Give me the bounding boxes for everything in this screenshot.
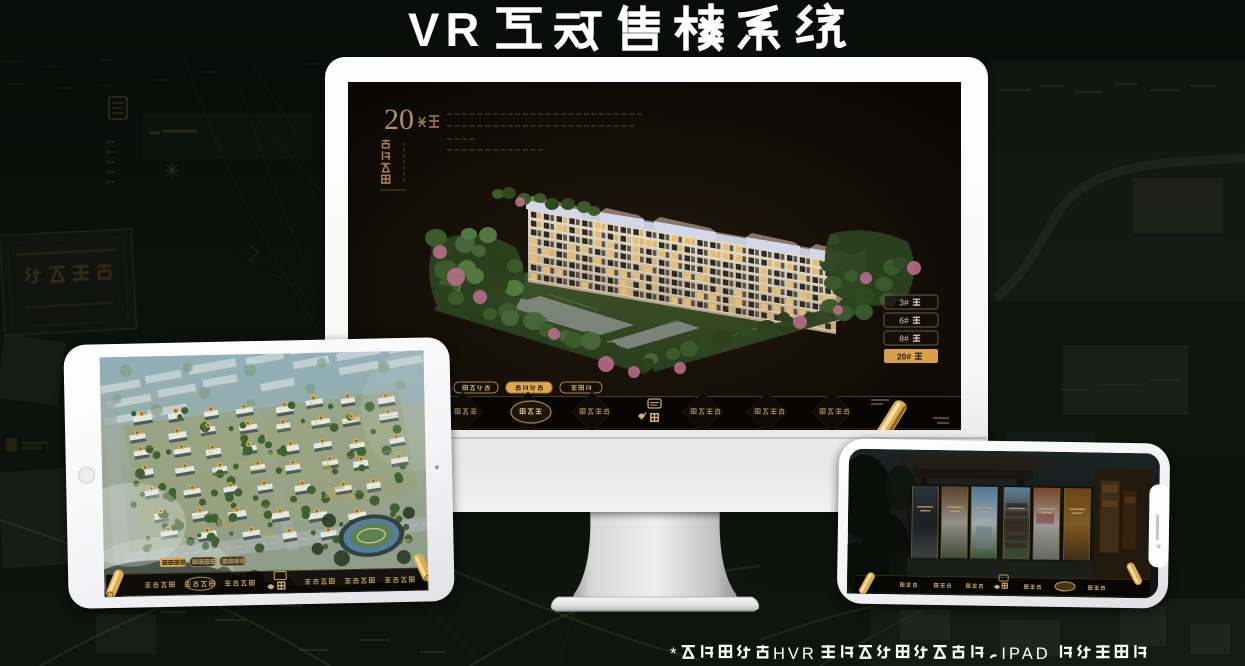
svg-text:8#: 8# <box>899 334 909 344</box>
svg-text:*: * <box>670 644 677 663</box>
svg-text:20: 20 <box>384 103 414 136</box>
svg-text:6#: 6# <box>899 316 909 326</box>
svg-text:VR: VR <box>408 3 485 56</box>
svg-text:IPAD: IPAD <box>1001 645 1050 663</box>
svg-text:3#: 3# <box>899 298 909 308</box>
svg-text:20#: 20# <box>897 352 911 362</box>
svg-text:HVR: HVR <box>773 645 817 663</box>
